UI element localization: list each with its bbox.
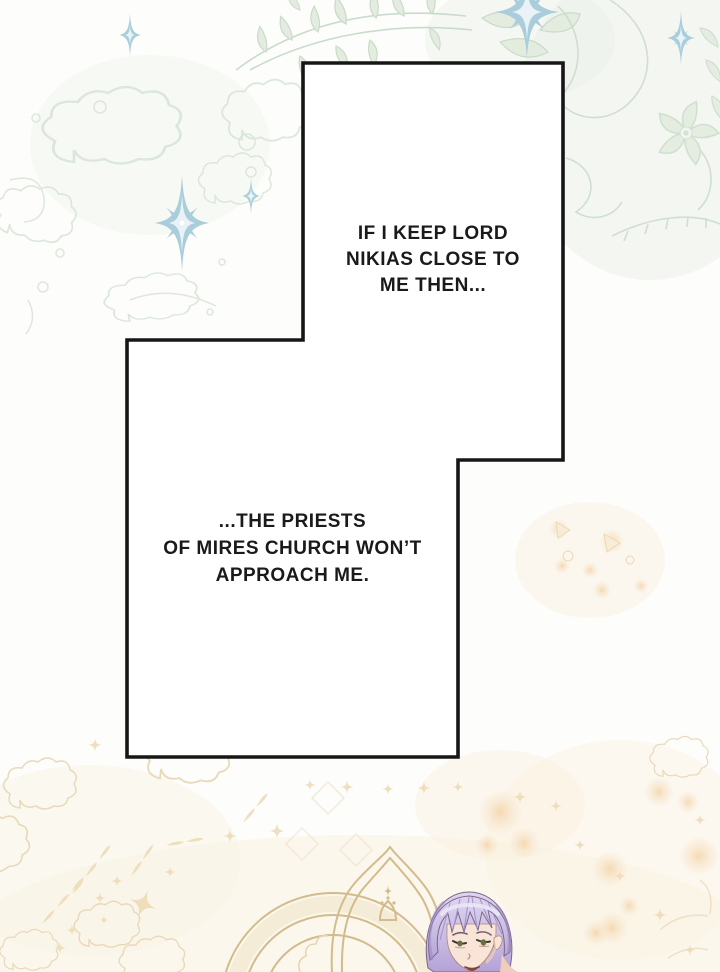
speech-line: ...THE PRIESTS [127,508,458,535]
speech-line: ME THEN... [303,273,563,299]
background-decorations [0,0,720,972]
speech-line: APPROACH ME. [127,562,458,589]
comic-page: IF I KEEP LORD NIKIAS CLOSE TO ME THEN..… [0,0,720,972]
sparkle-4-point-top-left-icon [119,13,141,57]
speech-line: NIKIAS CLOSE TO [303,247,563,273]
speech-bubble-top-text: IF I KEEP LORD NIKIAS CLOSE TO ME THEN..… [303,221,563,299]
speech-bubble-bottom-text: ...THE PRIESTS OF MIRES CHURCH WON’T APP… [127,508,458,589]
character-portrait [420,890,518,972]
speech-line: OF MIRES CHURCH WON’T [127,535,458,562]
character-head [426,892,518,972]
speech-line: IF I KEEP LORD [303,221,563,247]
